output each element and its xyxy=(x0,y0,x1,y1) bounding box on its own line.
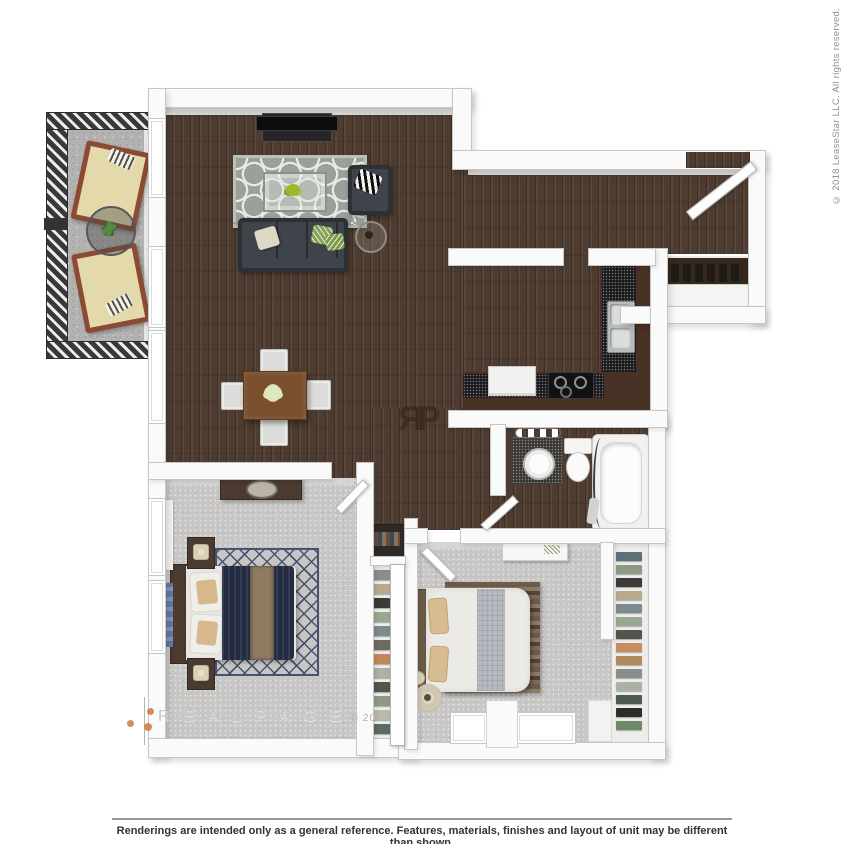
dining-centerpiece xyxy=(264,385,282,401)
clothes-stack xyxy=(616,643,642,652)
floor-plan: RP R E A L P A G E© 2018 xyxy=(0,0,844,844)
pantry-counter xyxy=(666,284,748,307)
realpage-brand-year: © 2018 xyxy=(350,712,390,724)
bathroom-sink xyxy=(523,448,555,480)
bedroom2-window-sill-1 xyxy=(450,712,488,744)
wall-top-living xyxy=(148,88,472,108)
master-throw-blanket xyxy=(250,566,274,660)
linen-stack xyxy=(372,626,390,636)
footer-disclaimer: Renderings are intended only as a genera… xyxy=(112,818,732,844)
balcony-railing-top xyxy=(46,112,158,130)
sofa-pillow-green-2 xyxy=(325,233,345,251)
clothes-stack xyxy=(616,630,642,639)
wall-pantry-bottom xyxy=(620,306,766,324)
pantry-bottles xyxy=(671,264,741,282)
coffee-table-decor xyxy=(286,184,300,196)
clothes-stack xyxy=(616,721,642,730)
realpage-logo-dot-1 xyxy=(147,708,154,715)
master-accent-pillow-2 xyxy=(196,620,218,646)
clothes-stack xyxy=(616,552,642,561)
plant-leaf xyxy=(106,221,112,237)
master-mirror xyxy=(246,480,278,499)
realpage-brand-text: R E A L P A G E xyxy=(158,708,346,725)
clothes-stack xyxy=(616,695,642,704)
clothes-stack xyxy=(616,604,642,613)
linen-stack xyxy=(372,640,390,650)
wall-bottom-bedroom2 xyxy=(398,742,666,760)
stove-burner-3 xyxy=(560,386,572,398)
clothes-stack xyxy=(616,656,642,665)
wall-closet-right xyxy=(404,518,418,750)
dining-chair-bottom xyxy=(260,418,288,446)
copyright-vertical: © 2018 LeaseStar LLC. All rights reserve… xyxy=(831,8,842,205)
dishwasher xyxy=(488,366,536,396)
bedroom2-runner xyxy=(477,589,505,691)
hall-closet-items xyxy=(374,532,400,546)
clothes-stack xyxy=(616,565,642,574)
toilet-bowl xyxy=(566,452,590,482)
realpage-watermark: R E A L P A G E© 2018 xyxy=(158,708,390,726)
wall-kitchen-top-left xyxy=(448,248,564,266)
bedroom2-pillow-1 xyxy=(428,597,449,634)
clothes-stack xyxy=(616,591,642,600)
living-window-1 xyxy=(148,118,166,198)
wall-kitchen-top-right xyxy=(588,248,656,266)
clothes-stack xyxy=(616,617,642,626)
vanity-lights xyxy=(516,429,560,437)
bedroom2-pillow-2 xyxy=(428,645,449,682)
living-window-2 xyxy=(148,246,166,328)
linen-stack xyxy=(372,612,390,622)
linen-stack xyxy=(372,696,390,706)
wall-right-lower xyxy=(648,416,666,758)
linen-stack xyxy=(372,682,390,692)
linen-stack xyxy=(372,668,390,678)
wall-bedroom2-top-right xyxy=(460,528,666,544)
dining-chair-right xyxy=(306,380,331,410)
tv-screen xyxy=(256,116,338,131)
realpage-logo-line xyxy=(144,697,145,745)
stove-burner-2 xyxy=(574,376,587,389)
patio-plant xyxy=(95,215,123,243)
master-accent-pillow-1 xyxy=(196,579,218,605)
clothes-stack xyxy=(616,682,642,691)
bedroom2-art-sketch xyxy=(544,545,560,554)
master-window-2 xyxy=(148,580,166,654)
bedroom2-window-pier xyxy=(486,700,518,748)
wall-kitchen-right xyxy=(650,248,668,430)
realpage-monogram: RP xyxy=(398,402,440,436)
wall-master-top xyxy=(148,462,332,480)
master-lamp-bottom xyxy=(193,665,209,681)
kitchen-sink-basin-2 xyxy=(610,328,630,348)
realpage-logo-dot-2 xyxy=(127,720,134,727)
realpage-logo-dot-3 xyxy=(144,723,152,731)
disclaimer-text: Renderings are intended only as a genera… xyxy=(117,825,728,844)
linen-stack xyxy=(372,584,390,594)
clothes-stack xyxy=(616,669,642,678)
balcony-door xyxy=(148,330,166,424)
wall-bedroom2-closet-left xyxy=(600,542,614,640)
entry-door-threshold xyxy=(686,152,750,168)
entry-hall-floor xyxy=(463,168,748,254)
wall-kitchen-bottom xyxy=(448,410,668,428)
balcony-post xyxy=(44,218,68,230)
wall-bedroom2-top-left xyxy=(404,528,428,544)
master-window-1 xyxy=(148,498,166,576)
monogram-r: R xyxy=(398,402,423,436)
wall-entry-right xyxy=(748,150,766,324)
master-lamp-top xyxy=(193,544,209,560)
bedroom2-closet-stacks xyxy=(616,552,642,740)
linen-closet-door xyxy=(390,564,405,746)
balcony-railing-bottom xyxy=(46,341,158,359)
linen-stack xyxy=(372,654,390,664)
bedroom2-pouf-center xyxy=(424,694,431,701)
wall-bath-left xyxy=(490,424,506,496)
wall-bottom-master xyxy=(148,738,418,758)
bedroom2-right-sill xyxy=(588,700,612,742)
balcony-railing-left xyxy=(46,112,68,359)
clothes-stack xyxy=(616,578,642,587)
clothes-stack xyxy=(616,708,642,717)
linen-stack xyxy=(372,570,390,580)
side-table-candle xyxy=(365,231,373,239)
linen-stack xyxy=(372,598,390,608)
bedroom2-window-sill-2 xyxy=(516,712,576,744)
